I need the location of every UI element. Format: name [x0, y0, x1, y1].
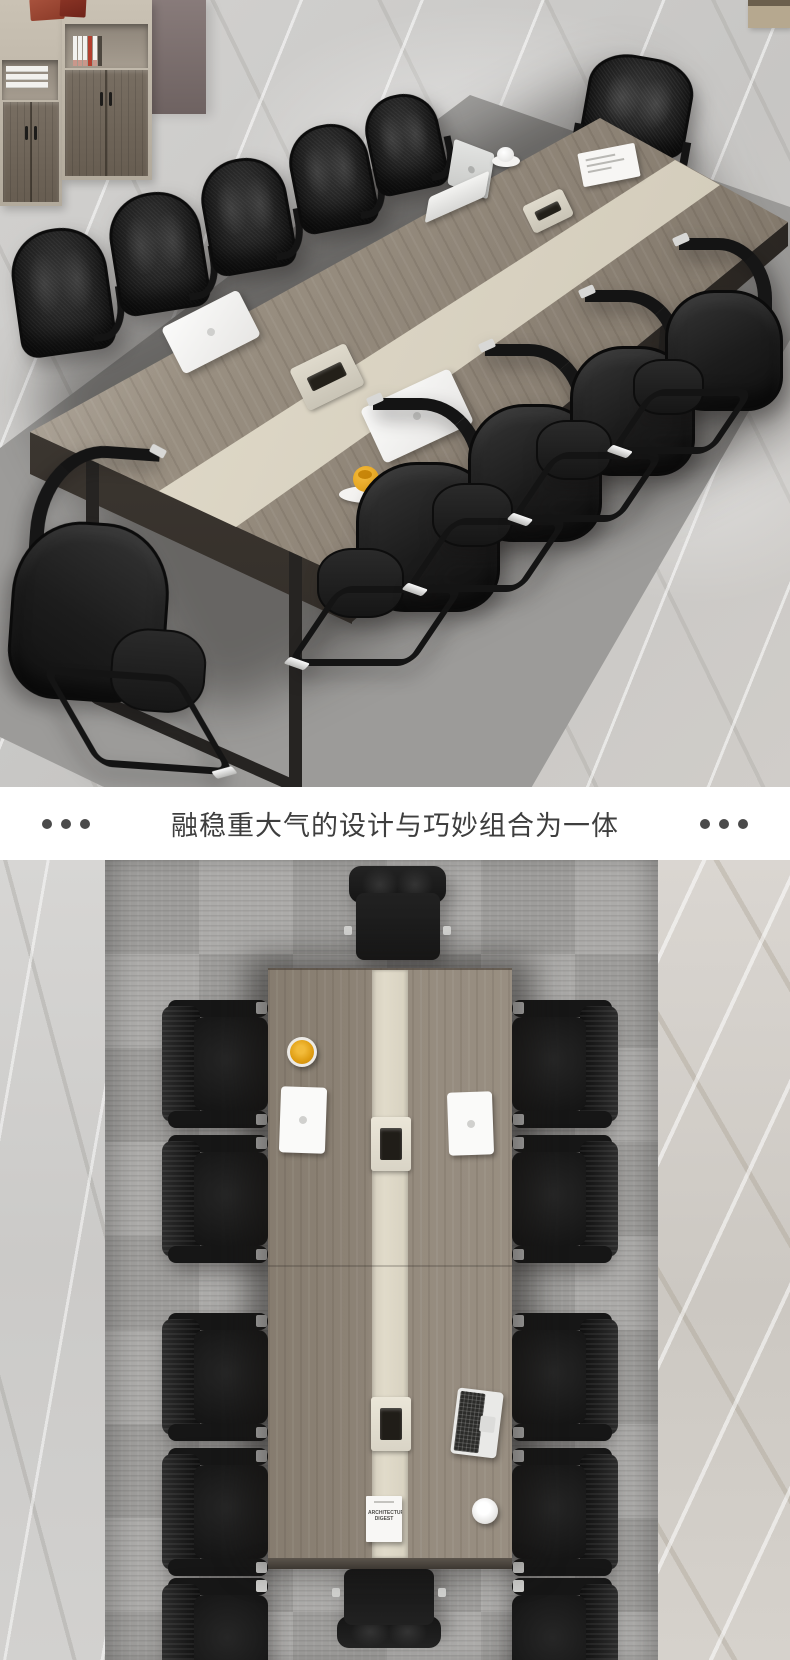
chair-seat: [356, 893, 440, 960]
banner-title: 融稳重大气的设计与巧妙组合为一体: [171, 804, 619, 843]
chair-seat: [344, 1569, 434, 1625]
chrome-fitting: [344, 926, 352, 935]
apple-logo-icon: [466, 1119, 474, 1127]
tablet: [279, 1086, 327, 1154]
chrome-fitting: [438, 1588, 446, 1597]
chair-sled-base: [403, 518, 570, 592]
chair-row-near: [0, 0, 790, 787]
office-chair: [333, 1560, 445, 1648]
laptop-trackpad: [479, 1416, 496, 1434]
cable-grommet-box: [371, 1397, 411, 1451]
decor-dot: [80, 819, 90, 829]
chair-sled-base: [41, 666, 237, 776]
chrome-fitting: [443, 926, 451, 935]
chair-seat: [194, 1595, 268, 1660]
decor-dot: [738, 819, 748, 829]
photo-conference-room-top-view: ARCHITECTURAL DIGEST: [0, 860, 790, 1660]
open-laptop: [450, 1387, 504, 1458]
conference-table-top-view: ARCHITECTURAL DIGEST: [268, 968, 512, 1558]
chair-seat: [512, 1595, 586, 1660]
chair-sled-base: [508, 452, 665, 522]
office-chair: [162, 1578, 268, 1660]
feature-banner: 融稳重大气的设计与巧妙组合为一体: [0, 787, 790, 860]
yellow-cup: [287, 1037, 317, 1067]
chair-sled-base: [608, 389, 755, 454]
cable-slot: [380, 1408, 402, 1440]
decor-dot: [42, 819, 52, 829]
coffee-cup: [472, 1498, 498, 1524]
decor-dot: [61, 819, 71, 829]
magazine-title: ARCHITECTURAL DIGEST: [368, 1510, 400, 1523]
chrome-fitting: [332, 1588, 340, 1597]
cable-slot: [380, 1128, 402, 1160]
chair-sled-base: [285, 586, 466, 666]
photo-conference-room-angle-view: [0, 0, 790, 787]
magazine: ARCHITECTURAL DIGEST: [366, 1496, 402, 1542]
office-chair: [512, 1578, 618, 1660]
table-seam: [268, 1265, 512, 1267]
table-bottom-edge: [268, 1558, 512, 1569]
cable-grommet-box: [371, 1117, 411, 1171]
decor-dot: [719, 819, 729, 829]
tablet: [447, 1091, 494, 1156]
decor-dot: [700, 819, 710, 829]
office-chair: [0, 438, 231, 774]
product-detail-page: 融稳重大气的设计与巧妙组合为一体 ARCHITECTURAL DIGEST: [0, 0, 790, 1660]
decor-dots-left: [42, 819, 90, 829]
apple-logo-icon: [299, 1116, 307, 1124]
table-center-stripe: [372, 970, 408, 1558]
office-chair: [626, 238, 790, 454]
office-chair: [345, 866, 450, 970]
decor-dots-right: [700, 819, 748, 829]
